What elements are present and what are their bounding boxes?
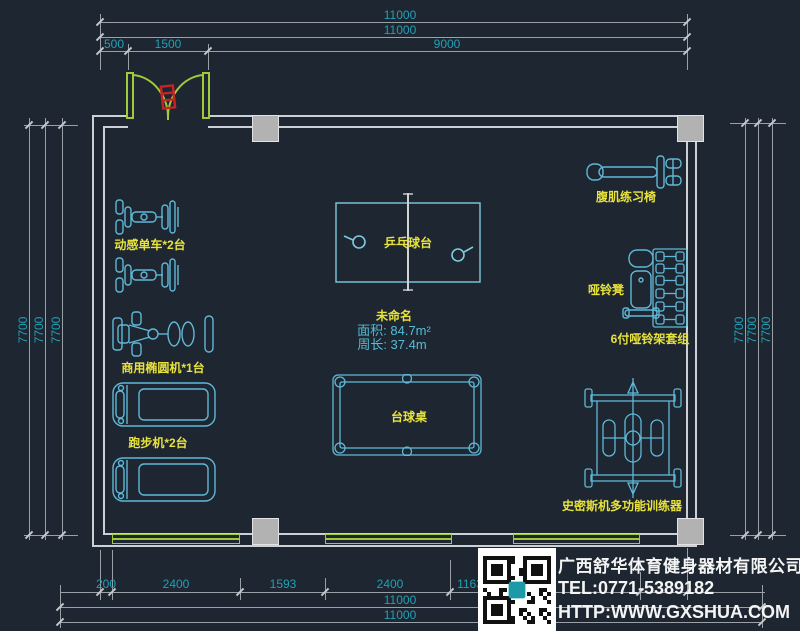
dim-bottom-200: 200	[96, 578, 116, 590]
ab-chair-label: 腹肌练习椅	[596, 191, 656, 204]
room-area: 面积: 84.7m²	[357, 324, 431, 337]
room-name: 未命名	[376, 310, 412, 323]
dim-left-3: 7700	[50, 308, 62, 352]
window-bottom-1	[112, 534, 240, 544]
company-website: HTTP:WWW.GXSHUA.COM	[558, 602, 790, 623]
column-top-mid	[252, 115, 279, 142]
dim-top-total-2: 11000	[384, 24, 416, 36]
pingpong-label: 乒乓球台	[384, 237, 432, 250]
treadmill-label: 跑步机*2台	[128, 437, 187, 450]
elliptical-machine	[112, 311, 217, 357]
elliptical-label: 商用椭圆机*1台	[121, 362, 204, 375]
dumbbell-bench-label: 哑铃凳	[588, 284, 624, 297]
company-tel: TEL:0771-5389182	[558, 578, 714, 599]
dim-right-3: 7700	[760, 308, 772, 352]
spin-bike-label: 动感单车*2台	[114, 239, 185, 252]
treadmill-2	[112, 456, 217, 503]
dim-bottom-total-1: 11000	[384, 594, 416, 606]
dim-top-9000: 9000	[434, 38, 461, 50]
dim-bottom-total-2: 11000	[384, 609, 416, 621]
column-top-right	[677, 115, 704, 142]
dim-right-2: 7700	[746, 308, 758, 352]
qr-code	[478, 548, 556, 631]
smith-machine-label: 史密斯机多功能训练器	[562, 500, 682, 513]
dim-left-1: 7700	[17, 308, 29, 352]
window-bottom-2	[325, 534, 452, 544]
window-bottom-3	[513, 534, 640, 544]
billiard-label: 台球桌	[391, 411, 427, 424]
dim-right-1: 7700	[733, 308, 745, 352]
dim-top-1500: 1500	[155, 38, 182, 50]
room-perimeter: 周长: 37.4m	[357, 338, 426, 351]
company-name: 广西舒华体育健身器材有限公司	[558, 552, 800, 577]
smith-machine	[583, 378, 683, 498]
dim-bottom-2400b: 2400	[377, 578, 404, 590]
column-bottom-right	[677, 518, 704, 545]
dumbbell-rack-label: 6付哑铃架套组	[611, 333, 690, 346]
dim-bottom-1593: 1593	[270, 578, 297, 590]
dim-top-500: 500	[104, 38, 124, 50]
dim-bottom-2400a: 2400	[163, 578, 190, 590]
dim-top-total-1: 11000	[384, 9, 416, 21]
dumbbell-rack	[652, 248, 688, 328]
qr-code-pattern	[483, 556, 551, 624]
ab-chair	[585, 152, 685, 192]
floor-plan-canvas: 11000 11000 500 1500 9000 7700 7700 7700…	[0, 0, 800, 631]
dim-left-2: 7700	[33, 308, 45, 352]
entry-double-door	[124, 70, 212, 122]
spin-bike-1	[115, 199, 180, 235]
treadmill-1	[112, 381, 217, 428]
column-bottom-mid	[252, 518, 279, 545]
spin-bike-2	[115, 257, 180, 293]
